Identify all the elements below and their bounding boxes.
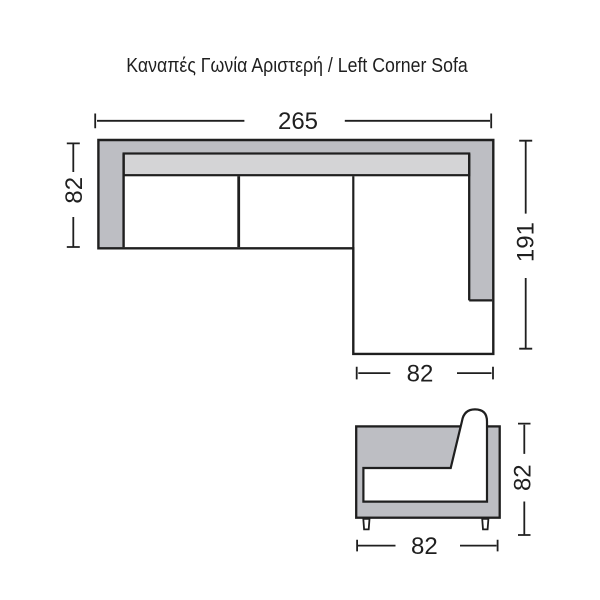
svg-text:82: 82 — [510, 464, 537, 491]
svg-text:191: 191 — [513, 222, 540, 262]
svg-text:Καναπές Γωνία Αριστερή / Left: Καναπές Γωνία Αριστερή / Left Corner Sof… — [126, 55, 468, 77]
svg-text:265: 265 — [278, 108, 318, 135]
svg-text:82: 82 — [411, 533, 438, 560]
svg-text:82: 82 — [61, 177, 88, 204]
svg-text:82: 82 — [407, 360, 434, 387]
